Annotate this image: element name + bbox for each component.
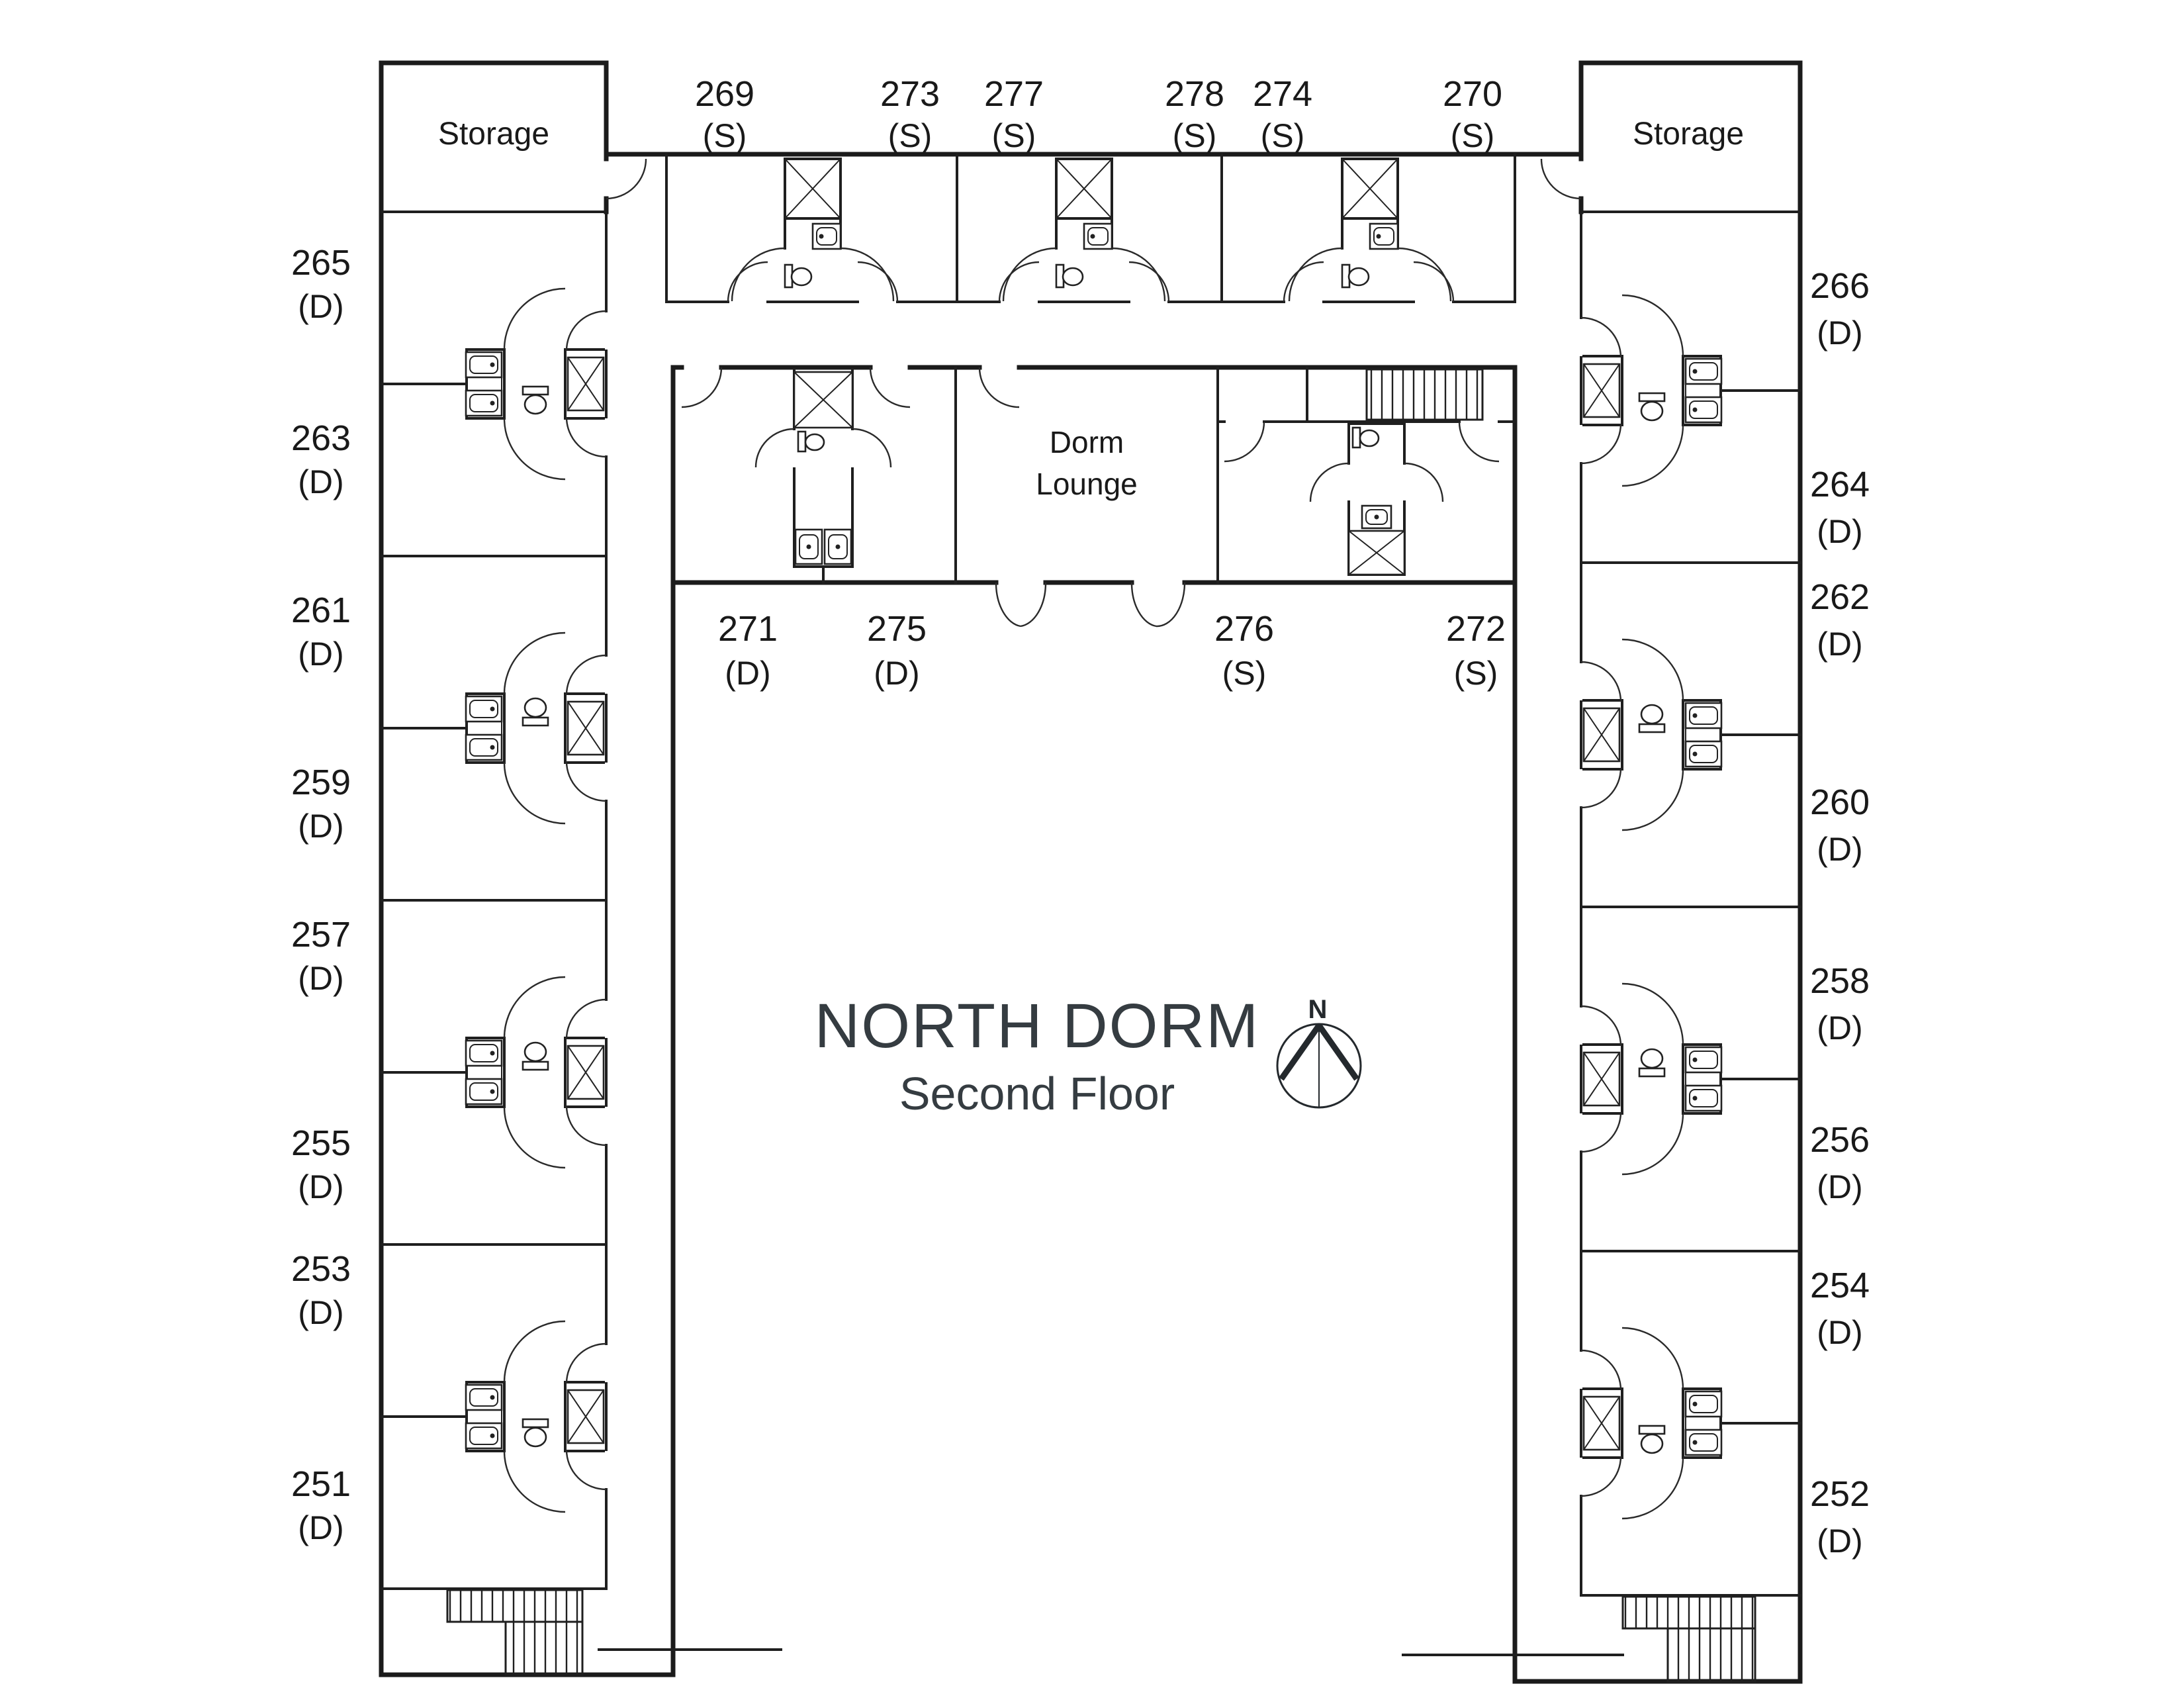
- door-arc-253: [567, 1344, 606, 1383]
- room-label-272: 272: [1446, 609, 1506, 649]
- room-label-252: 252: [1810, 1474, 1870, 1514]
- room-type-269: (S): [703, 117, 747, 154]
- door-arc-275: [870, 367, 910, 407]
- door-arc-272: [1459, 422, 1499, 461]
- door-arc-263: [567, 417, 606, 457]
- room-type-276: (S): [1222, 655, 1267, 692]
- room-type-256: (D): [1817, 1168, 1862, 1205]
- stairs-icon: [1668, 1628, 1755, 1681]
- door-arc-270: [1414, 262, 1453, 302]
- room-type-252: (D): [1817, 1523, 1862, 1560]
- door-arc-storage-left: [606, 159, 646, 199]
- stairs-icon: [447, 1590, 582, 1622]
- room-type-251: (D): [298, 1509, 343, 1546]
- door-arc-256: [1581, 1112, 1621, 1152]
- door-arc-266: [1581, 318, 1621, 357]
- room-type-253: (D): [298, 1294, 343, 1331]
- door-arc-262: [1581, 662, 1621, 702]
- room-type-274: (S): [1261, 117, 1305, 154]
- room-label-276: 276: [1214, 609, 1274, 649]
- bath-suite-258-256: [1584, 984, 1721, 1174]
- sink-drain: [836, 545, 841, 549]
- bath-suite-269-273: [732, 159, 893, 301]
- door-arcs: [567, 159, 1621, 1496]
- room-label-278: 278: [1165, 74, 1224, 114]
- room-label-265: 265: [291, 243, 351, 283]
- door-arc-259: [567, 761, 606, 801]
- room-label-260: 260: [1810, 782, 1870, 822]
- sink-drain: [1375, 515, 1379, 520]
- compass-north-label: N: [1308, 995, 1328, 1024]
- room-type-263: (D): [298, 463, 343, 500]
- room-label-277: 277: [984, 74, 1044, 114]
- lounge-double-door-arc: [1132, 583, 1156, 626]
- lounge-double-door-arc: [996, 583, 1021, 626]
- compass-icon: N: [1277, 995, 1361, 1107]
- room-type-270: (S): [1451, 117, 1495, 154]
- room-type-272: (S): [1454, 655, 1498, 692]
- room-type-261: (D): [298, 635, 343, 673]
- door-arc-lounge: [979, 367, 1019, 407]
- room-label-261: 261: [291, 590, 351, 630]
- room-type-275: (D): [874, 655, 919, 692]
- room-type-262: (D): [1817, 626, 1862, 663]
- door-arc-258: [1581, 1006, 1621, 1046]
- room-label-271: 271: [718, 609, 778, 649]
- room-type-257: (D): [298, 960, 343, 997]
- door-arc-265: [567, 311, 606, 351]
- room-label-258: 258: [1810, 961, 1870, 1001]
- room-label-266: 266: [1810, 266, 1870, 306]
- bath-suite-277-278: [1003, 159, 1165, 301]
- storage-left-label: Storage: [438, 117, 549, 152]
- stairs-icon: [506, 1622, 582, 1675]
- door-arc-269: [728, 262, 768, 302]
- sink-drain: [807, 545, 811, 549]
- door-arc-260: [1581, 768, 1621, 808]
- room-label-275: 275: [867, 609, 927, 649]
- door-arc-277: [999, 262, 1039, 302]
- bath-suite-254-252: [1584, 1328, 1721, 1519]
- suite-door-arc: [852, 429, 891, 467]
- room-type-266: (D): [1817, 314, 1862, 352]
- toilet-bowl-icon: [1360, 430, 1379, 446]
- page-subtitle: Second Floor: [899, 1068, 1175, 1119]
- bath-suite-257-255: [466, 977, 604, 1168]
- room-label-264: 264: [1810, 465, 1870, 504]
- stairs-icon: [1367, 369, 1482, 420]
- room-type-271: (D): [725, 655, 770, 692]
- room-type-258: (D): [1817, 1009, 1862, 1047]
- suite-door-arc: [756, 429, 794, 467]
- bath-suite-253-251: [466, 1321, 604, 1512]
- room-label-257: 257: [291, 915, 351, 955]
- toilet-tank-icon: [798, 432, 805, 451]
- bath-suite-271-275: [756, 369, 891, 583]
- room-label-259: 259: [291, 763, 351, 802]
- door-arc-255: [567, 1105, 606, 1145]
- door-arc-264: [1581, 424, 1621, 463]
- room-type-255: (D): [298, 1168, 343, 1205]
- bath-suite-261-259: [466, 633, 604, 823]
- room-label-254: 254: [1810, 1266, 1870, 1305]
- door-arc-278: [1129, 262, 1169, 302]
- room-type-277: (S): [992, 117, 1036, 154]
- room-label-270: 270: [1443, 74, 1502, 114]
- room-label-273: 273: [880, 74, 940, 114]
- door-arc-276: [1224, 422, 1264, 461]
- toilet-tank-icon: [1353, 428, 1360, 447]
- room-type-259: (D): [298, 808, 343, 845]
- door-arc-254: [1581, 1350, 1621, 1390]
- room-type-278: (S): [1173, 117, 1217, 154]
- room-type-273: (S): [888, 117, 933, 154]
- lounge-double-door-arc: [1156, 583, 1185, 626]
- lounge-double-door-arc: [1021, 583, 1046, 626]
- bath-suite-265-263: [466, 289, 604, 479]
- title-block: NORTH DORM Second Floor: [815, 991, 1260, 1119]
- room-label-251: 251: [291, 1464, 351, 1504]
- bath-suite-262-260: [1584, 639, 1721, 830]
- room-label-253: 253: [291, 1249, 351, 1289]
- bath-suites: [466, 159, 1721, 1519]
- room-label-269: 269: [695, 74, 754, 114]
- suite-door-arc: [1310, 463, 1349, 502]
- door-arc-271: [682, 367, 721, 407]
- door-arc-252: [1581, 1456, 1621, 1496]
- door-arc-storage-right: [1541, 159, 1581, 199]
- room-type-260: (D): [1817, 831, 1862, 868]
- room-label-256: 256: [1810, 1120, 1870, 1160]
- stairs-icon: [1623, 1597, 1755, 1628]
- lounge-label-line1: Dorm: [1050, 425, 1124, 459]
- room-type-254: (D): [1817, 1314, 1862, 1351]
- door-arc-261: [567, 655, 606, 695]
- bath-suite-274-270: [1289, 159, 1451, 301]
- bath-suite-266-264: [1584, 295, 1721, 486]
- room-type-265: (D): [298, 288, 343, 325]
- room-label-263: 263: [291, 418, 351, 458]
- page-title: NORTH DORM: [815, 991, 1260, 1061]
- door-arc-257: [567, 1000, 606, 1039]
- storage-right-label: Storage: [1633, 117, 1744, 152]
- room-label-255: 255: [291, 1123, 351, 1163]
- room-label-262: 262: [1810, 577, 1870, 617]
- room-type-264: (D): [1817, 513, 1862, 550]
- lounge-label-line2: Lounge: [1036, 467, 1138, 501]
- suite-door-arc: [1404, 463, 1443, 502]
- door-arc-273: [858, 262, 897, 302]
- door-arc-251: [567, 1450, 606, 1489]
- floor-plan: Storage Storage Dorm Lounge 269 (S) 273 …: [0, 0, 2184, 1688]
- room-label-274: 274: [1253, 74, 1312, 114]
- bath-suite-276-272: [1310, 424, 1443, 575]
- toilet-bowl-icon: [805, 434, 824, 450]
